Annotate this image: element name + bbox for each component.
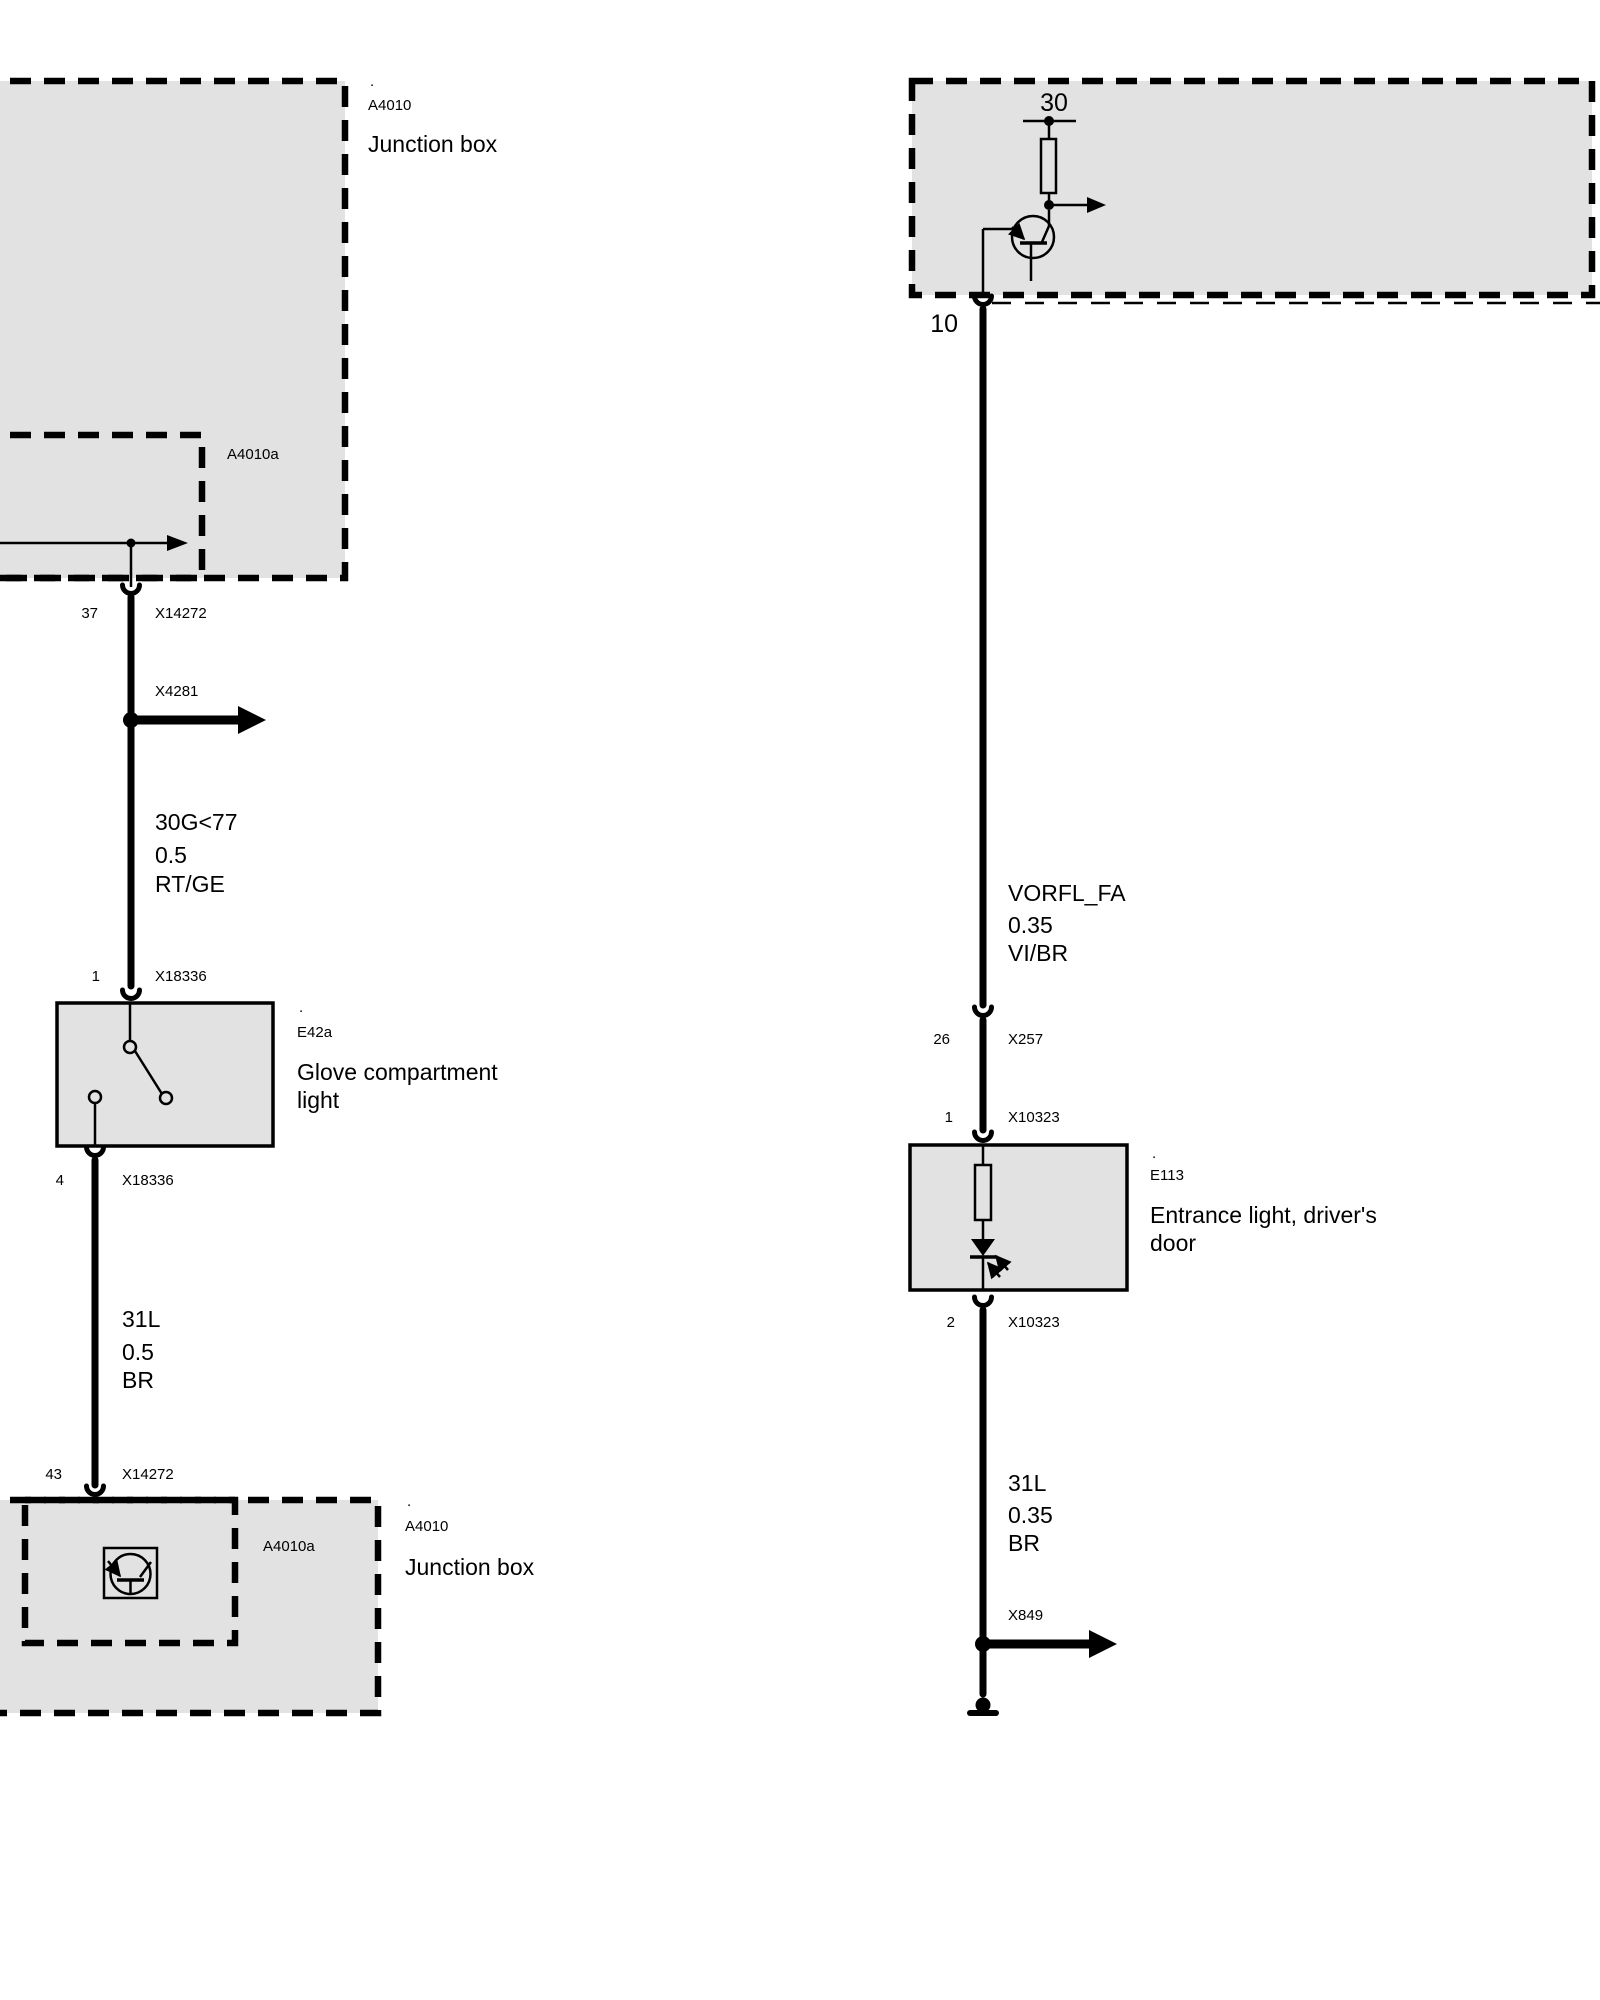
wire-vorfl-circuit: VORFL_FA xyxy=(1008,880,1126,906)
fuse-icon xyxy=(1041,139,1056,193)
junction-box-top-id: A4010 xyxy=(368,97,411,114)
connector-x18336-bottom: X18336 xyxy=(122,1172,174,1189)
junction-box-top-dot: . xyxy=(370,73,374,90)
splice-x849-label: X849 xyxy=(1008,1607,1043,1624)
connector-x10323-bottom: X10323 xyxy=(1008,1314,1060,1331)
pin-4: 4 xyxy=(56,1172,64,1189)
entrance-light-box xyxy=(910,1145,1127,1290)
glove-light-box xyxy=(57,1003,273,1146)
wire-31l-right-color: BR xyxy=(1008,1530,1040,1556)
glove-switch-contact-end xyxy=(160,1092,172,1104)
pin-26: 26 xyxy=(933,1031,950,1048)
junction-box-top-inner-id: A4010a xyxy=(227,446,279,463)
junction-box-top-name: Junction box xyxy=(368,131,498,157)
wire-30g-color: RT/GE xyxy=(155,871,225,897)
pin-1-left: 1 xyxy=(92,968,100,985)
junction-box-bottom-fill xyxy=(0,1500,378,1713)
right-circuit xyxy=(910,296,1127,1713)
wire-30g-size: 0.5 xyxy=(155,842,187,868)
pin-43: 43 xyxy=(45,1466,62,1483)
splice-x4281-arrow-icon xyxy=(238,706,266,734)
entrance-light-id: E113 xyxy=(1150,1167,1184,1184)
junction-box-bottom-inner-id: A4010a xyxy=(263,1538,315,1555)
wire-30g-circuit: 30G<77 xyxy=(155,809,238,835)
entrance-light-name-line1: Entrance light, driver's xyxy=(1150,1202,1377,1228)
connector-x14272-bottom: X14272 xyxy=(122,1466,174,1483)
wire-31l-left-circuit: 31L xyxy=(122,1306,161,1332)
glove-light-dot: . xyxy=(299,999,303,1016)
glove-switch-contact-bottom xyxy=(89,1091,101,1103)
junction-box-bottom xyxy=(0,1500,378,1713)
entrance-light-dot: . xyxy=(1152,1145,1156,1162)
connector-cup-x10323-2-icon xyxy=(975,1297,992,1306)
transistor-icon xyxy=(1012,216,1054,258)
connector-x10323-top: X10323 xyxy=(1008,1109,1060,1126)
wire-31l-left-size: 0.5 xyxy=(122,1339,154,1365)
wiring-diagram-svg: . A4010 Junction box A4010a 37 X14272 X4… xyxy=(0,0,1600,2000)
wire-vorfl-color: VI/BR xyxy=(1008,940,1068,966)
junction-box-bottom-id: A4010 xyxy=(405,1518,448,1535)
left-circuit xyxy=(57,585,273,1495)
connector-x18336-top: X18336 xyxy=(155,968,207,985)
connector-x14272-top: X14272 xyxy=(155,605,207,622)
pin-10: 10 xyxy=(930,310,958,338)
module-box-top-right xyxy=(912,81,1592,297)
connector-cup-x18336-1-icon xyxy=(123,990,140,999)
glove-light-name-line2: light xyxy=(297,1087,340,1113)
glove-light-id: E42a xyxy=(297,1024,333,1041)
junction-box-bottom-name: Junction box xyxy=(405,1554,535,1580)
wire-31l-left-color: BR xyxy=(122,1367,154,1393)
connector-x257: X257 xyxy=(1008,1031,1043,1048)
pin-37: 37 xyxy=(81,605,98,622)
connector-cup-x18336-4-icon xyxy=(87,1147,104,1156)
entrance-resistor-icon xyxy=(975,1165,991,1220)
junction-box-top-fill xyxy=(0,81,345,578)
splice-x849-arrow-icon xyxy=(1089,1630,1117,1658)
pin-2: 2 xyxy=(947,1314,955,1331)
module-box-fill xyxy=(912,81,1592,295)
splice-x4281-label: X4281 xyxy=(155,683,198,700)
glove-switch-contact-top xyxy=(124,1041,136,1053)
junction-box-top xyxy=(0,81,345,587)
wire-31l-right-circuit: 31L xyxy=(1008,1470,1047,1496)
wire-vorfl-size: 0.35 xyxy=(1008,912,1053,938)
junction-box-bottom-dot: . xyxy=(407,1493,411,1510)
terminal-30-label: 30 xyxy=(1040,89,1068,117)
glove-light-name-line1: Glove compartment xyxy=(297,1059,498,1085)
wire-31l-right-size: 0.35 xyxy=(1008,1502,1053,1528)
pin-1-right: 1 xyxy=(945,1109,953,1126)
wiring-diagram-page: . A4010 Junction box A4010a 37 X14272 X4… xyxy=(0,0,1600,2000)
entrance-light-name-line2: door xyxy=(1150,1230,1196,1256)
